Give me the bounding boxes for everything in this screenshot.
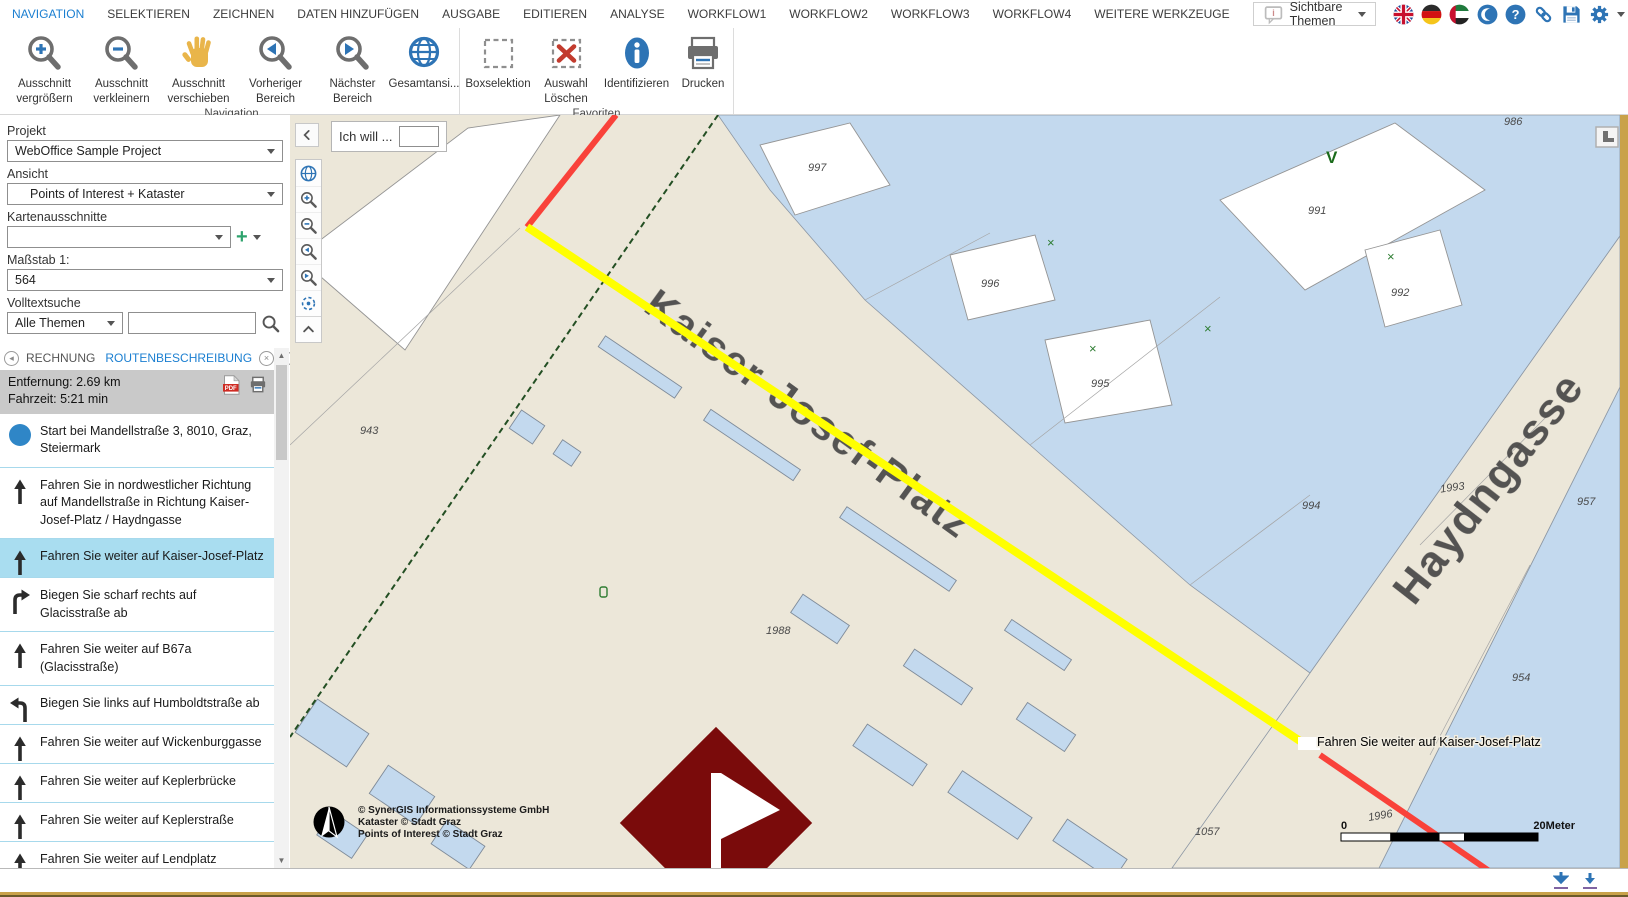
route-step[interactable]: Fahren Sie weiter auf B67a (Glacisstraße… xyxy=(0,632,274,686)
map-locate-tool[interactable] xyxy=(296,290,321,316)
route-step-text: Fahren Sie in nordwestlicher Richtung au… xyxy=(40,468,274,539)
left-sidebar: Projekt WebOffice Sample Project Ansicht… xyxy=(0,115,290,868)
zoom-out-label: Ausschnitt verkleinern xyxy=(83,77,160,107)
chevron-down-icon xyxy=(267,149,275,154)
print-label: Drucken xyxy=(682,77,725,92)
route-step[interactable]: Biegen Sie links auf Humboldtstraße ab xyxy=(0,686,274,725)
bottom-status-strip xyxy=(0,868,1628,892)
close-tab-icon[interactable]: × xyxy=(259,351,274,366)
chevron-down-icon xyxy=(267,192,275,197)
start-point-icon xyxy=(9,424,31,446)
scrollbar-thumb[interactable] xyxy=(276,365,287,460)
add-extent-button[interactable]: + xyxy=(236,228,248,246)
pan-label: Ausschnitt verschieben xyxy=(160,77,237,107)
previous-extent-button[interactable]: Vorheriger Bereich xyxy=(237,28,314,107)
clear-selection-label: Auswahl Löschen xyxy=(534,77,598,107)
map-extents-label: Kartenausschnitte xyxy=(7,210,283,224)
route-step-text: Fahren Sie weiter auf Lendplatz xyxy=(40,842,274,868)
route-step-text: Start bei Mandellstraße 3, 8010, Graz, S… xyxy=(40,414,274,467)
svg-text:1988: 1988 xyxy=(766,625,791,637)
next-extent-label: Nächster Bereich xyxy=(314,77,391,107)
straight-arrow-icon xyxy=(0,725,40,763)
map-viewport[interactable]: Kaiser-Josef-Platz Haydngasse Fahren Sie… xyxy=(290,115,1628,868)
svg-text:Kataster © Stadt Graz: Kataster © Stadt Graz xyxy=(358,817,461,828)
svg-text:0: 0 xyxy=(1341,820,1347,832)
straight-arrow-icon xyxy=(0,842,40,868)
search-scope-value: Alle Themen xyxy=(15,316,85,330)
ribbon-toolbar: Ausschnitt vergrößern Ausschnitt verklei… xyxy=(0,28,1628,115)
help-icon[interactable]: ? xyxy=(1505,4,1526,25)
map-tools-collapse-chevron-up-icon[interactable] xyxy=(296,316,321,342)
extent-options-caret-icon[interactable] xyxy=(253,235,261,240)
svg-text:×: × xyxy=(1089,341,1097,356)
tab-routenbeschreibung[interactable]: ROUTENBESCHREIBUNG xyxy=(100,351,257,365)
themes-bubble-icon: i xyxy=(1263,4,1284,25)
svg-text:957: 957 xyxy=(1577,496,1596,508)
menu-zeichnen[interactable]: ZEICHNEN xyxy=(213,7,274,21)
route-steps-list: Start bei Mandellstraße 3, 8010, Graz, S… xyxy=(0,414,274,868)
map-canvas[interactable]: Kaiser-Josef-Platz Haydngasse Fahren Sie… xyxy=(290,115,1620,868)
previous-extent-label: Vorheriger Bereich xyxy=(237,77,314,107)
project-value: WebOffice Sample Project xyxy=(15,144,161,158)
previous-extent-icon xyxy=(255,31,297,77)
download-button-1[interactable] xyxy=(1553,872,1569,889)
map-tool-stack xyxy=(295,159,322,343)
chevron-down-icon xyxy=(215,235,223,240)
route-step[interactable]: Biegen Sie scharf rechts auf Glacisstraß… xyxy=(0,578,274,632)
identify-button[interactable]: Identifizieren xyxy=(598,28,675,107)
map-globe-tool[interactable] xyxy=(296,160,321,186)
svg-text:20Meter: 20Meter xyxy=(1533,820,1575,832)
route-step[interactable]: Fahren Sie weiter auf Keplerstraße xyxy=(0,803,274,842)
chevron-down-icon xyxy=(107,321,115,326)
svg-text:×: × xyxy=(1204,321,1212,336)
svg-text:943: 943 xyxy=(360,425,379,437)
route-step[interactable]: Fahren Sie weiter auf Lendplatz xyxy=(0,842,274,868)
scroll-tabs-left-icon[interactable]: ◂ xyxy=(4,351,19,366)
tab-routenberechnung[interactable]: RECHNUNG xyxy=(21,351,100,365)
zoom-out-button[interactable]: Ausschnitt verkleinern xyxy=(83,28,160,107)
menu-daten-hinzufuegen[interactable]: DATEN HINZUFÜGEN xyxy=(297,7,419,21)
scale-select[interactable]: 564 xyxy=(7,269,283,291)
sidebar-scrollbar[interactable]: ▲ ▼ xyxy=(274,348,289,868)
export-pdf-icon[interactable]: PDF xyxy=(223,375,240,395)
svg-text:992: 992 xyxy=(1391,287,1409,299)
project-label: Projekt xyxy=(7,124,283,138)
language-german-flag-icon[interactable] xyxy=(1421,4,1442,25)
map-zoom-in-tool[interactable] xyxy=(296,186,321,212)
svg-text:954: 954 xyxy=(1512,672,1530,684)
menu-workflow2[interactable]: WORKFLOW2 xyxy=(789,7,868,21)
route-step-text: Fahren Sie weiter auf B67a (Glacisstraße… xyxy=(40,632,274,685)
svg-text:996: 996 xyxy=(981,278,1000,290)
straight-arrow-icon xyxy=(0,468,40,539)
download-button-2[interactable] xyxy=(1582,872,1598,889)
menu-weitere-werkzeuge[interactable]: WEITERE WERKZEUGE xyxy=(1094,7,1229,21)
route-map-tooltip: Fahren Sie weiter auf Kaiser-Josef-Platz xyxy=(1317,735,1541,749)
zoom-in-button[interactable]: Ausschnitt vergrößern xyxy=(6,28,83,107)
next-extent-button[interactable]: Nächster Bereich xyxy=(314,28,391,107)
visible-themes-label: Sichtbare Themen xyxy=(1290,0,1352,28)
map-zoom-out-tool[interactable] xyxy=(296,212,321,238)
svg-text:×: × xyxy=(1047,235,1055,250)
route-step-text: Fahren Sie weiter auf Keplerbrücke xyxy=(40,764,274,802)
route-summary-header: Entfernung: 2.69 km Fahrzeit: 5:21 min P… xyxy=(0,370,274,414)
route-step-start[interactable]: Start bei Mandellstraße 3, 8010, Graz, S… xyxy=(0,414,274,468)
route-step-text: Fahren Sie weiter auf Keplerstraße xyxy=(40,803,274,841)
chevron-down-icon xyxy=(267,278,275,283)
overview-map-toggle-button[interactable] xyxy=(1596,127,1618,147)
language-arabic-flag-icon[interactable] xyxy=(1449,4,1470,25)
zoom-in-label: Ausschnitt vergrößern xyxy=(6,77,83,107)
language-english-flag-icon[interactable] xyxy=(1393,4,1414,25)
ribbon-group-navigation: Ausschnitt vergrößern Ausschnitt verklei… xyxy=(4,28,460,114)
night-mode-moon-icon[interactable] xyxy=(1477,4,1498,25)
clear-selection-icon xyxy=(545,31,587,77)
menu-workflow1[interactable]: WORKFLOW1 xyxy=(688,7,767,21)
svg-text:Points of Interest © Stadt Gra: Points of Interest © Stadt Graz xyxy=(358,829,503,840)
search-scope-select[interactable]: Alle Themen xyxy=(7,312,123,334)
view-value: Points of Interest + Kataster xyxy=(30,187,185,201)
route-step-text: Biegen Sie links auf Humboldtstraße ab xyxy=(40,686,274,724)
menu-analyse[interactable]: ANALYSE xyxy=(610,7,664,21)
svg-text:?: ? xyxy=(1511,7,1519,22)
map-previous-extent-tool[interactable] xyxy=(296,238,321,264)
window-frame-border xyxy=(0,892,1628,897)
route-step[interactable]: Fahren Sie in nordwestlicher Richtung au… xyxy=(0,468,274,540)
ich-will-input[interactable] xyxy=(399,126,439,147)
route-step[interactable]: Fahren Sie weiter auf Keplerbrücke xyxy=(0,764,274,803)
full-extent-button[interactable]: Gesamtansi... xyxy=(391,28,457,107)
menu-workflow4[interactable]: WORKFLOW4 xyxy=(993,7,1072,21)
svg-text:© SynerGIS Informationssysteme: © SynerGIS Informationssysteme GmbH xyxy=(358,805,549,816)
full-extent-globe-icon xyxy=(403,31,445,77)
next-extent-icon xyxy=(332,31,374,77)
scroll-up-icon[interactable]: ▲ xyxy=(274,348,289,363)
identify-label: Identifizieren xyxy=(604,77,669,92)
svg-text:986: 986 xyxy=(1504,116,1523,128)
route-step-text: Fahren Sie weiter auf Kaiser-Josef-Platz xyxy=(40,539,274,577)
map-green-v-marker: V xyxy=(1326,148,1338,167)
zoom-out-icon xyxy=(101,31,143,77)
ribbon-group-favoriten: Boxselektion Auswahl Löschen xyxy=(460,28,734,114)
topbar-right-icons: i Sichtbare Themen xyxy=(1253,2,1628,26)
svg-text:i: i xyxy=(1272,8,1274,18)
box-selection-icon xyxy=(477,31,519,77)
svg-text:994: 994 xyxy=(1302,500,1320,512)
share-link-icon[interactable] xyxy=(1533,4,1554,25)
view-select[interactable]: Points of Interest + Kataster xyxy=(7,183,283,205)
map-extents-select[interactable] xyxy=(7,226,231,248)
svg-text:×: × xyxy=(1387,249,1395,264)
ich-will-quick-action-box: Ich will ... xyxy=(331,121,447,152)
settings-gear-icon[interactable] xyxy=(1589,4,1610,25)
scale-label: Maßstab 1: xyxy=(7,253,283,267)
turn-left-arrow-icon xyxy=(0,686,40,724)
project-select[interactable]: WebOffice Sample Project xyxy=(7,140,283,162)
straight-arrow-icon xyxy=(0,764,40,802)
menu-navigation[interactable]: NAVIGATION xyxy=(12,7,84,21)
route-step-text: Fahren Sie weiter auf Wickenburggasse xyxy=(40,725,274,763)
svg-text:997: 997 xyxy=(808,162,827,174)
menu-bar: NAVIGATION SELEKTIEREN ZEICHNEN DATEN HI… xyxy=(0,0,1628,28)
visible-themes-dropdown[interactable]: i Sichtbare Themen xyxy=(1253,2,1376,26)
route-step[interactable]: Fahren Sie weiter auf Wickenburggasse xyxy=(0,725,274,764)
pan-hand-icon xyxy=(178,31,220,77)
scroll-down-icon[interactable]: ▼ xyxy=(274,853,289,868)
route-step-selected[interactable]: Fahren Sie weiter auf Kaiser-Josef-Platz xyxy=(0,539,274,578)
clear-selection-button[interactable]: Auswahl Löschen xyxy=(534,28,598,107)
save-icon[interactable] xyxy=(1561,4,1582,25)
straight-arrow-icon xyxy=(0,632,40,685)
full-extent-label: Gesamtansi... xyxy=(389,77,460,92)
box-selection-button[interactable]: Boxselektion xyxy=(462,28,534,107)
ich-will-label: Ich will ... xyxy=(339,129,392,144)
zoom-in-icon xyxy=(24,31,66,77)
straight-arrow-icon xyxy=(0,803,40,841)
print-icon xyxy=(682,31,724,77)
scale-value: 564 xyxy=(15,273,36,287)
menu-editieren[interactable]: EDITIEREN xyxy=(523,7,587,21)
pan-button[interactable]: Ausschnitt verschieben xyxy=(160,28,237,107)
svg-text:991: 991 xyxy=(1308,205,1326,217)
straight-arrow-icon xyxy=(0,539,40,577)
box-selection-label: Boxselektion xyxy=(465,77,530,92)
map-next-extent-tool[interactable] xyxy=(296,264,321,290)
chevron-down-icon xyxy=(1358,12,1366,17)
fulltext-search-input[interactable] xyxy=(128,312,256,334)
print-button[interactable]: Drucken xyxy=(675,28,731,107)
svg-text:PDF: PDF xyxy=(225,386,237,392)
svg-text:995: 995 xyxy=(1091,378,1110,390)
north-arrow xyxy=(314,807,345,838)
print-route-icon[interactable] xyxy=(248,375,268,395)
collapse-sidebar-button[interactable] xyxy=(295,123,319,147)
fulltext-search-label: Volltextsuche xyxy=(7,296,283,310)
menu-workflow3[interactable]: WORKFLOW3 xyxy=(891,7,970,21)
view-label: Ansicht xyxy=(7,167,283,181)
panel-tab-bar: ◂ RECHNUNG ROUTENBESCHREIBUNG × ▸ ▾ xyxy=(0,346,290,370)
route-step-text: Biegen Sie scharf rechts auf Glacisstraß… xyxy=(40,578,274,631)
search-icon[interactable] xyxy=(261,314,280,333)
menu-selektieren[interactable]: SELEKTIEREN xyxy=(107,7,190,21)
sharp-right-arrow-icon xyxy=(0,578,40,631)
identify-info-icon xyxy=(616,31,658,77)
menu-ausgabe[interactable]: AUSGABE xyxy=(442,7,500,21)
settings-caret-icon[interactable] xyxy=(1617,12,1625,17)
svg-text:1057: 1057 xyxy=(1195,826,1220,838)
